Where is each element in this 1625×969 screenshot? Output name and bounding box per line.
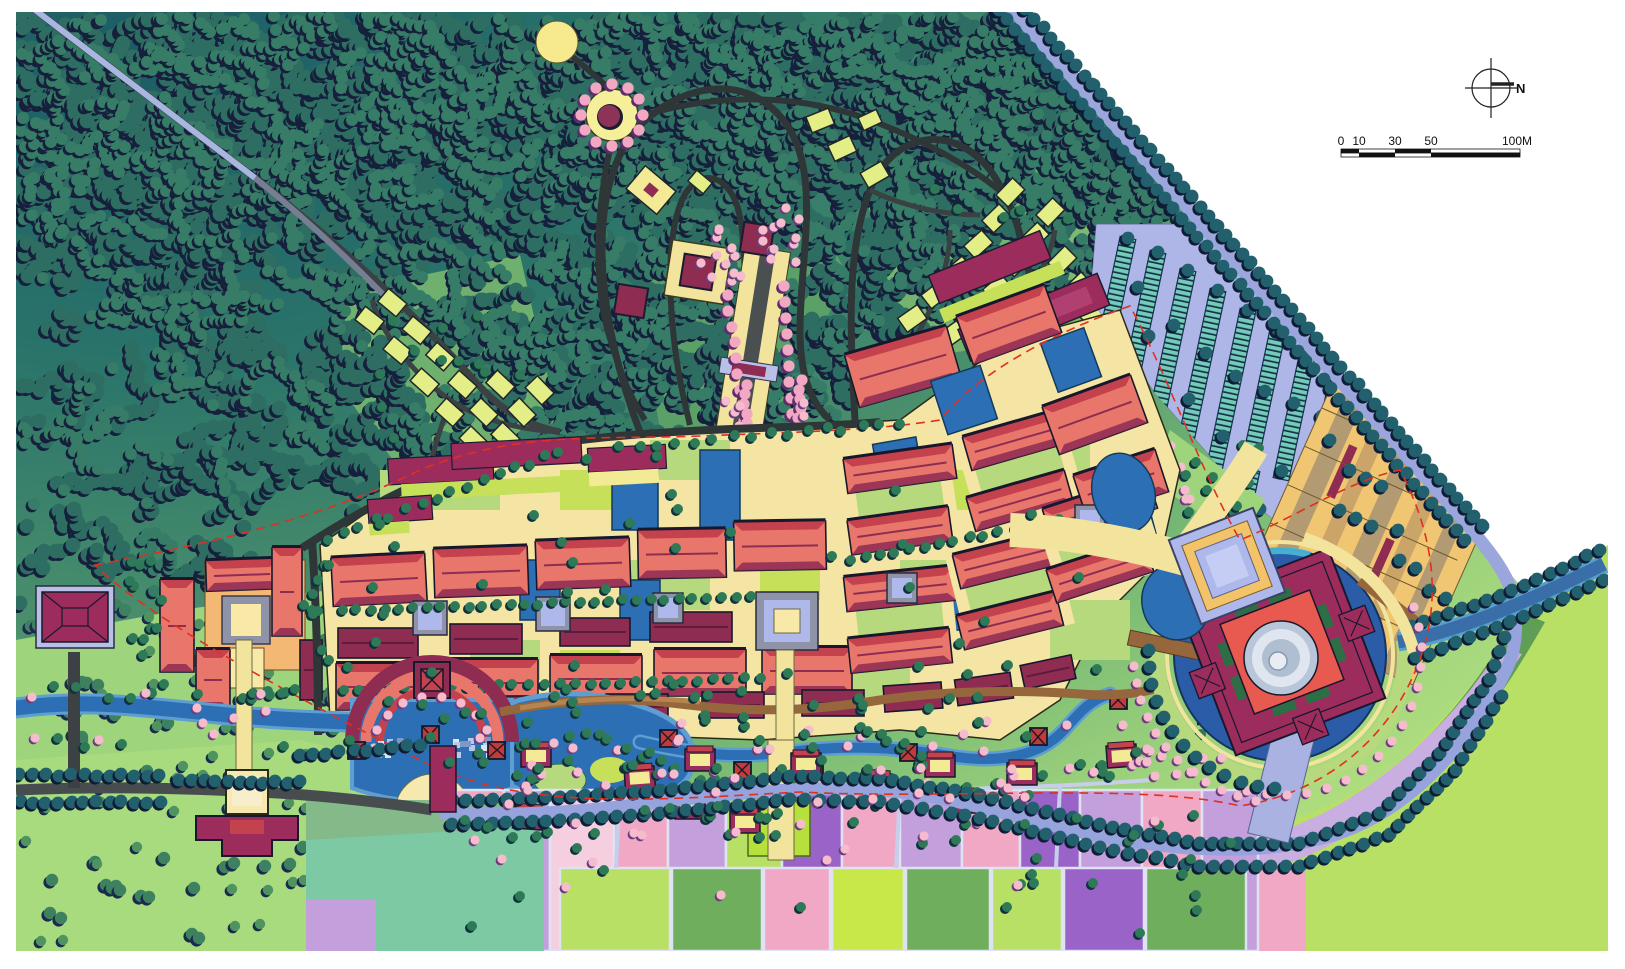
svg-text:10: 10 [1352,134,1366,148]
svg-text:0: 0 [1338,134,1345,148]
svg-text:30: 30 [1388,134,1402,148]
svg-text:N: N [1516,81,1525,96]
svg-text:100M: 100M [1502,134,1532,148]
svg-text:50: 50 [1424,134,1438,148]
